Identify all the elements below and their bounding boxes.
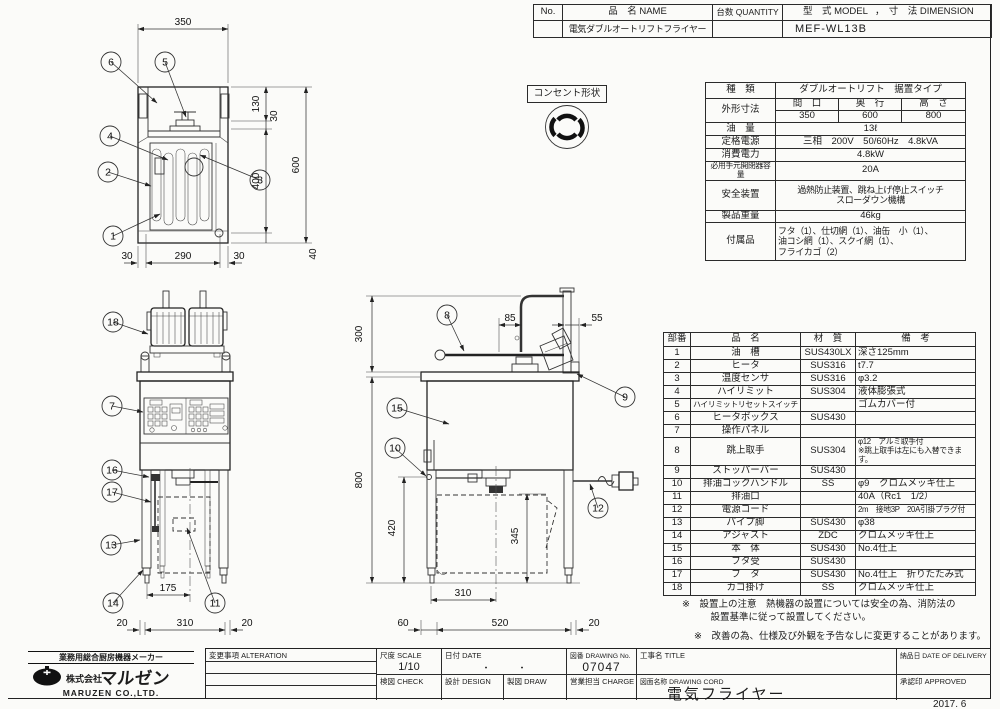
svg-text:6: 6 xyxy=(108,57,114,69)
revision-date: 2017. 6 xyxy=(933,699,966,709)
balloon-6: 6 xyxy=(101,52,157,103)
balloon-13: 13 xyxy=(101,535,140,555)
check-cell: 検図 CHECK xyxy=(376,674,441,700)
svg-text:1: 1 xyxy=(110,231,116,243)
part-material: SUS430 xyxy=(801,517,856,530)
dim: 85 xyxy=(504,313,516,324)
side-view: 300 800 420 345 85 55 310 xyxy=(354,288,638,635)
delivery-label: 納品日 DATE OF DELIVERY xyxy=(897,649,991,660)
parts-row: 1油 槽SUS430LX深さ125mm xyxy=(664,347,976,360)
spec-consumption: 4.8kW xyxy=(776,149,966,162)
header-col-qty: 台数 QUANTITY xyxy=(713,5,783,21)
header-col-model-dim: 型 式 MODEL，寸 法 DIMENSION xyxy=(783,5,992,21)
parts-row: 3温度センサSUS316φ3.2 xyxy=(664,373,976,386)
company-name-en: MARUZEN CO.,LTD. xyxy=(28,688,194,698)
part-name: ヒータボックス xyxy=(691,412,801,425)
spec-value: ダブルオートリフト 据置タイプ xyxy=(776,83,966,99)
header-col-dim: 寸 法 DIMENSION xyxy=(884,7,978,18)
dim: 345 xyxy=(510,527,521,544)
part-name: 排油口 xyxy=(691,491,801,504)
part-material: SS xyxy=(801,582,856,595)
spec-label: 油 量 xyxy=(706,123,776,136)
parts-row: 6ヒータボックスSUS430 xyxy=(664,412,976,425)
balloon-14: 14 xyxy=(103,570,143,613)
part-material: SUS304 xyxy=(801,438,856,466)
charge-label: 営業担当 CHARGE xyxy=(567,675,636,687)
spec-label: 必用手元開閉器容量 xyxy=(706,162,776,181)
draw-label: 製図 DRAW xyxy=(504,675,566,687)
svg-text:12: 12 xyxy=(592,503,604,515)
oil-can-outline xyxy=(158,497,210,573)
spec-label: 消費電力 xyxy=(706,149,776,162)
part-material: SUS304 xyxy=(801,386,856,399)
dim: 520 xyxy=(492,618,509,629)
power-cord xyxy=(573,472,638,490)
svg-text:9: 9 xyxy=(622,392,628,404)
dim: 40 xyxy=(308,248,319,260)
auto-lift-arm xyxy=(435,288,579,373)
part-note: No.4仕上 折りたたみ式 xyxy=(856,569,976,582)
part-material xyxy=(801,504,856,517)
part-material: SUS430 xyxy=(801,465,856,478)
part-material: SUS430 xyxy=(801,543,856,556)
dim: 20 xyxy=(588,618,600,629)
spec-table: 種 類 ダブルオートリフト 据置タイプ 外形寸法 間 口 奥 行 高 さ 350… xyxy=(705,82,966,261)
dim: 30 xyxy=(269,110,280,122)
parts-row: 10排油コックハンドルSSφ9 クロムメッキ仕上 xyxy=(664,478,976,491)
parts-row: 16フタ受SUS430 xyxy=(664,556,976,569)
dim: 130 xyxy=(251,95,262,112)
balloon-8: 8 xyxy=(437,305,464,351)
parts-row: 4ハイリミットSUS304液体膨張式 xyxy=(664,386,976,399)
part-name: ハイリミット xyxy=(691,386,801,399)
frame-right xyxy=(990,4,991,699)
parts-row: 18カゴ掛けSSクロムメッキ仕上 xyxy=(664,582,976,595)
spec-sublabel: 間 口 xyxy=(776,99,839,111)
part-note: ゴムカバー付 xyxy=(856,399,976,412)
spec-sublabel: 奥 行 xyxy=(839,99,902,111)
spec-weight: 46kg xyxy=(776,210,966,222)
svg-text:10: 10 xyxy=(389,443,401,455)
part-name: パイプ脚 xyxy=(691,517,801,530)
temp-sensor-guard xyxy=(185,158,203,176)
dim: 800 xyxy=(354,471,365,488)
parts-header-material: 材 質 xyxy=(801,333,856,347)
part-name: ハイリミットリセットスイッチ xyxy=(691,399,801,412)
parts-row: 9ストッパーバーSUS430 xyxy=(664,465,976,478)
improvement-note: ※ 改善の為、仕様及び外観を予告なしに変更することがあります。 xyxy=(694,628,994,642)
installation-note: ※ 設置上の注意 熱機器の設置については安全の為、消防法の 設置基準に従って設置… xyxy=(682,598,990,625)
control-panel xyxy=(144,398,228,434)
drawing-name-value: 電気フライヤー xyxy=(667,683,786,704)
design-cell: 設計 DESIGN xyxy=(441,674,503,700)
part-note: クロムメッキ仕上 xyxy=(856,582,976,595)
spec-accessories: フタ（1）、仕切網（1）、油缶 小（1）、 油コシ網（1）、スクイ網（1）、 フ… xyxy=(776,222,966,260)
dim: 20 xyxy=(241,618,253,629)
spec-sublabel: 高 さ xyxy=(902,99,966,111)
part-note: φ3.2 xyxy=(856,373,976,386)
part-note: クロムメッキ仕上 xyxy=(856,530,976,543)
part-name: フタ受 xyxy=(691,556,801,569)
drain-valve xyxy=(427,470,511,493)
part-note: No.4仕上 xyxy=(856,543,976,556)
balloon-17: 17 xyxy=(102,482,151,502)
spec-breaker: 20A xyxy=(776,162,966,181)
check-label: 検図 CHECK xyxy=(377,675,441,687)
part-name: 電源コード xyxy=(691,504,801,517)
dim: 60 xyxy=(397,618,409,629)
parts-row: 13パイプ脚SUS430φ38 xyxy=(664,517,976,530)
parts-row: 5ハイリミットリセットスイッチゴムカバー付 xyxy=(664,399,976,412)
part-note xyxy=(856,465,976,478)
spec-power: 三相 200V 50/60Hz 4.8kVA xyxy=(776,136,966,149)
part-name: 温度センサ xyxy=(691,373,801,386)
part-name: アジャスト xyxy=(691,530,801,543)
part-name: 排油コックハンドル xyxy=(691,478,801,491)
svg-text:18: 18 xyxy=(107,317,119,329)
spec-depth: 600 xyxy=(839,111,902,123)
svg-text:8: 8 xyxy=(444,310,450,322)
svg-text:11: 11 xyxy=(210,598,221,610)
svg-text:2: 2 xyxy=(105,167,111,179)
engineering-drawing: 350 130 30 400 600 40 30 290 30 xyxy=(0,0,700,670)
alteration-rule xyxy=(206,685,376,686)
spec-safety: 過熱防止装置、跳ね上げ停止スイッチ スローダウン機構 xyxy=(776,180,966,210)
part-name: 油 槽 xyxy=(691,347,801,360)
part-material xyxy=(801,425,856,438)
svg-text:7: 7 xyxy=(109,401,115,413)
design-label: 設計 DESIGN xyxy=(442,675,503,687)
parts-row: 11排油口40A（Rc1 1/2） xyxy=(664,491,976,504)
approved-cell: 承認印 APPROVED xyxy=(896,674,991,700)
parts-row: 12電源コード2m 接地3P 20A引掛プラグ付 xyxy=(664,504,976,517)
part-material xyxy=(801,491,856,504)
parts-row: 15本 体SUS430No.4仕上 xyxy=(664,543,976,556)
drawing-sheet: No. 品 名 NAME 台数 QUANTITY 型 式 MODEL，寸 法 D… xyxy=(0,0,1000,709)
dim: 30 xyxy=(121,251,133,262)
part-material: SUS316 xyxy=(801,360,856,373)
part-material xyxy=(801,399,856,412)
dim: 310 xyxy=(455,588,472,599)
balloon-9: 9 xyxy=(577,374,635,407)
dim: 600 xyxy=(291,156,302,173)
spec-oil: 13ℓ xyxy=(776,123,966,136)
parts-header-note: 備 考 xyxy=(856,333,976,347)
balloon-7: 7 xyxy=(102,396,143,416)
spec-label: 定格電源 xyxy=(706,136,776,149)
svg-text:5: 5 xyxy=(162,57,168,69)
balloon-10: 10 xyxy=(385,438,426,476)
dim: 420 xyxy=(387,519,398,536)
model-number: MEF-WL13B xyxy=(783,21,992,38)
top-view: 350 130 30 400 600 40 30 290 30 xyxy=(98,17,319,268)
spec-label: 種 類 xyxy=(706,83,776,99)
draw-cell: 製図 DRAW xyxy=(503,674,566,700)
spec-label: 安全装置 xyxy=(706,180,776,210)
part-note: t7.7 xyxy=(856,360,976,373)
part-note: φ9 クロムメッキ仕上 xyxy=(856,478,976,491)
drain-cock xyxy=(151,470,218,532)
part-material: SS xyxy=(801,478,856,491)
header-col-model: 型 式 MODEL xyxy=(796,7,875,18)
company-prefix: 株式会社 xyxy=(66,672,102,685)
balloon-18: 18 xyxy=(103,312,148,334)
parts-row: 7操作パネル xyxy=(664,425,976,438)
part-note: 深さ125mm xyxy=(856,347,976,360)
part-note: 2m 接地3P 20A引掛プラグ付 xyxy=(856,504,976,517)
part-name: カゴ掛け xyxy=(691,582,801,595)
part-material: SUS430 xyxy=(801,569,856,582)
part-name: 跳上取手 xyxy=(691,438,801,466)
charge-cell: 営業担当 CHARGE xyxy=(566,674,636,700)
parts-row: 14アジャストZDCクロムメッキ仕上 xyxy=(664,530,976,543)
svg-text:13: 13 xyxy=(105,540,117,552)
part-name: フ タ xyxy=(691,569,801,582)
parts-row: 8跳上取手SUS304φ12 アルミ取手付 ※跳上取手は左にも入替できます。 xyxy=(664,438,976,466)
part-note: 液体膨張式 xyxy=(856,386,976,399)
front-view: 175 20 310 20 18 7 16 17 13 14 11 xyxy=(101,291,253,635)
dim: 300 xyxy=(354,325,365,342)
part-note: φ38 xyxy=(856,517,976,530)
part-material: ZDC xyxy=(801,530,856,543)
svg-text:14: 14 xyxy=(107,598,119,610)
balloon-5: 5 xyxy=(155,52,186,117)
header-col-sep: ， xyxy=(875,6,885,17)
spec-width: 350 xyxy=(776,111,839,123)
dim: 20 xyxy=(116,618,128,629)
dim: 310 xyxy=(177,618,194,629)
balloon-15: 15 xyxy=(387,398,449,424)
svg-text:3: 3 xyxy=(257,175,263,187)
spec-label: 付属品 xyxy=(706,222,776,260)
part-name: 本 体 xyxy=(691,543,801,556)
drawing-name-cell: 図面名称 DRAWING CORD 電気フライヤー xyxy=(636,674,896,700)
part-name: ヒータ xyxy=(691,360,801,373)
parts-table: 部番 品 名 材 質 備 考 1油 槽SUS430LX深さ125mm 2ヒータS… xyxy=(663,332,976,596)
svg-text:16: 16 xyxy=(106,465,118,477)
part-note xyxy=(856,425,976,438)
spec-height: 800 xyxy=(902,111,966,123)
part-material: SUS430LX xyxy=(801,347,856,360)
part-name: 操作パネル xyxy=(691,425,801,438)
spec-label: 製品重量 xyxy=(706,210,776,222)
alteration-rule xyxy=(206,673,376,674)
delivery-cell: 納品日 DATE OF DELIVERY xyxy=(896,649,991,674)
dim-top-width: 350 xyxy=(175,17,192,28)
svg-text:17: 17 xyxy=(106,487,118,499)
part-name: ストッパーバー xyxy=(691,465,801,478)
dim: 30 xyxy=(233,251,245,262)
spec-label: 外形寸法 xyxy=(706,99,776,123)
part-material: SUS316 xyxy=(801,373,856,386)
parts-header-name: 品 名 xyxy=(691,333,801,347)
part-note: 40A（Rc1 1/2） xyxy=(856,491,976,504)
dim: 55 xyxy=(591,313,603,324)
svg-text:15: 15 xyxy=(391,403,403,415)
part-note xyxy=(856,556,976,569)
part-material: SUS430 xyxy=(801,412,856,425)
parts-row: 17フ タSUS430No.4仕上 折りたたみ式 xyxy=(664,569,976,582)
lift-baskets xyxy=(147,308,227,346)
part-material: SUS430 xyxy=(801,556,856,569)
header-qty-value xyxy=(713,21,783,38)
balloon-2: 2 xyxy=(98,162,151,186)
svg-text:4: 4 xyxy=(107,131,113,143)
approved-label: 承認印 APPROVED xyxy=(897,675,991,687)
oil-can-outline-side xyxy=(437,495,547,573)
balloon-12: 12 xyxy=(588,484,608,518)
dim: 175 xyxy=(160,583,177,594)
dim: 290 xyxy=(175,251,192,262)
balloon-3: 3 xyxy=(200,155,270,190)
parts-row: 2ヒータSUS316t7.7 xyxy=(664,360,976,373)
part-note xyxy=(856,412,976,425)
part-note: φ12 アルミ取手付 ※跳上取手は左にも入替できます。 xyxy=(856,438,976,466)
